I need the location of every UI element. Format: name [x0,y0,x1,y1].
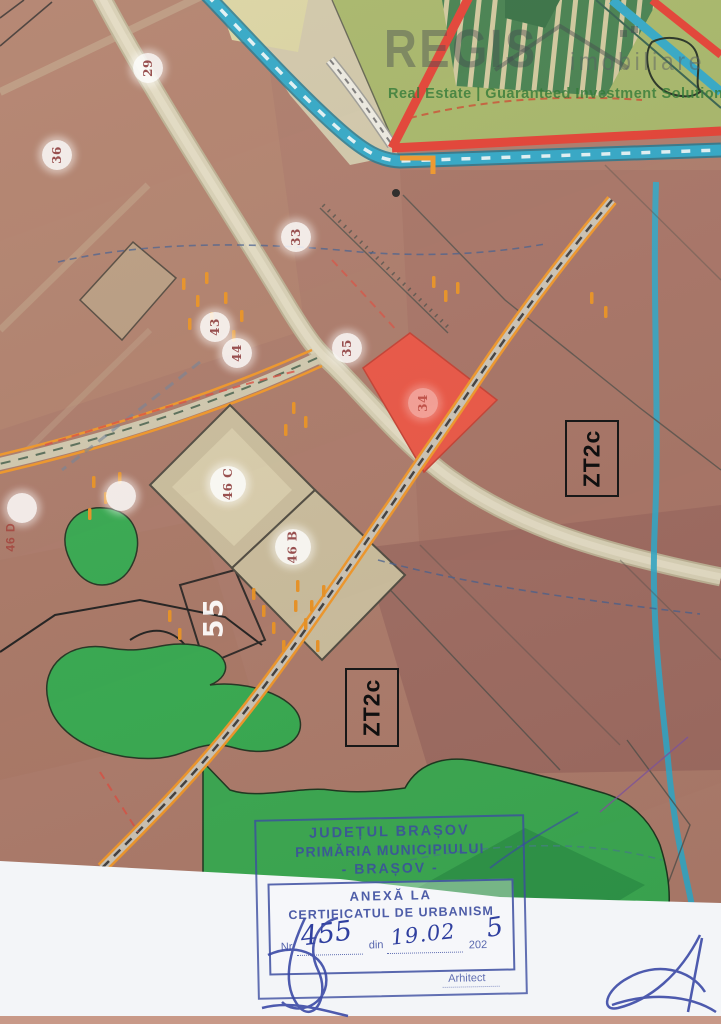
pasture-area [332,0,721,152]
architect-label: Arhitect [442,972,500,988]
stamp-inner-box: ANEXĂ LA CERTIFICATUL DE URBANISM Nr din… [267,878,515,975]
municipal-stamp: JUDEȚUL BRAȘOV PRIMĂRIA MUNICIPIULUI - B… [254,814,528,1000]
parcel-marker: 43 [200,312,230,342]
parcel-marker [7,493,37,523]
parcel-marker-label: 36 [50,146,64,164]
parcel-marker [106,481,136,511]
year-printed: 202 [469,939,488,951]
parcel-marker: 46 B [275,529,311,565]
table-edge [0,1016,721,1024]
parcel-marker: 29 [133,53,163,83]
parcel-marker-label: 46 B [286,530,300,563]
parcel-marker: 33 [281,222,311,252]
zone-label: ZT2c [359,679,386,737]
zone-label: ZT2c [579,430,606,488]
parcel-marker: 35 [332,333,362,363]
handwritten-date: 19.02 [389,919,456,950]
parcel-marker-label: 44 [230,344,244,362]
side-parcel-label: 46 D [4,522,18,551]
parcel-marker-label: 33 [289,228,303,246]
number-dotted-line [297,954,363,956]
parcel-marker: 36 [42,140,72,170]
parcel-marker-label: 29 [141,59,155,77]
parcel-marker-label: 43 [208,318,222,336]
parcel-marker-label: 46 C [221,468,235,500]
date-dotted-line [387,952,463,955]
area-number-label: 55 [198,597,229,639]
parcel-marker: 34 [408,388,438,418]
zone-box: ZT2c [345,668,399,747]
parcel-marker-label: 35 [340,339,354,357]
scanned-urbanism-map-page: 29 36 33 43 44 35 34 46 C 46 B ZT2c ZT2c… [0,0,721,1024]
annex-title: ANEXĂ LA [270,885,512,905]
number-label: Nr [281,941,293,953]
parcel-marker-label: 34 [416,394,430,412]
parcel-marker: 44 [222,338,252,368]
din-label: din [369,939,384,951]
handwritten-number: 455 [299,915,354,952]
parcel-marker: 46 C [210,466,246,502]
zone-box: ZT2c [565,420,619,497]
